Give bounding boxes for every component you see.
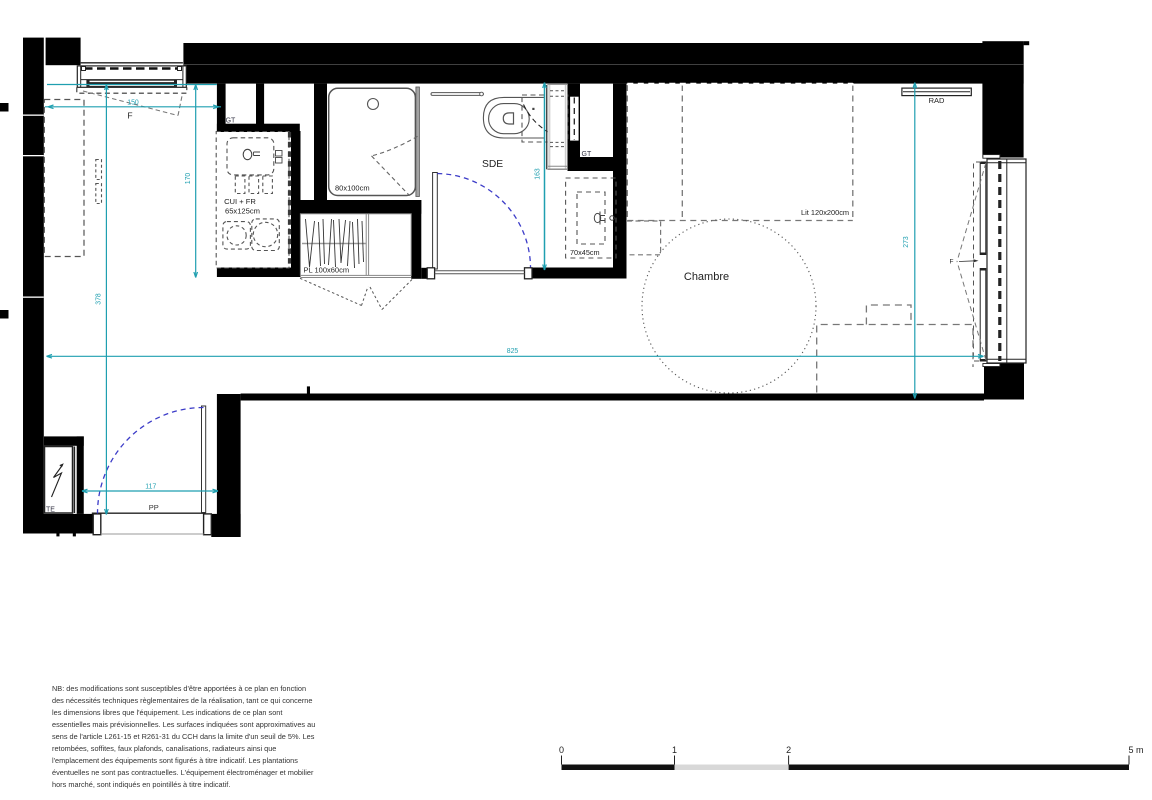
svg-text:PL 100x60cm: PL 100x60cm	[304, 266, 350, 275]
svg-text:5 m: 5 m	[1128, 745, 1143, 755]
svg-text:hors marché, sont indiqués en: hors marché, sont indiqués en pointillés…	[52, 780, 230, 789]
svg-text:les dimensions libres que l'éq: les dimensions libres que l'équipement. …	[52, 708, 282, 717]
svg-text:l'emplacement des équipements: l'emplacement des équipements sont figur…	[52, 756, 298, 765]
svg-text:TE: TE	[46, 506, 55, 513]
svg-text:170: 170	[185, 173, 192, 185]
svg-text:GT: GT	[582, 151, 592, 158]
svg-text:70x45cm: 70x45cm	[570, 248, 600, 257]
svg-text:1: 1	[672, 745, 677, 755]
svg-text:éventuelles ne sont pas contra: éventuelles ne sont pas contractuelles. …	[52, 768, 314, 777]
svg-text:150: 150	[127, 100, 139, 107]
svg-text:retombées, soffites, faux plaf: retombées, soffites, faux plafonds, cana…	[52, 744, 276, 753]
svg-text:163: 163	[535, 168, 542, 180]
svg-text:117: 117	[145, 484, 156, 491]
svg-text:sens de l'article L261-15 et R: sens de l'article L261-15 et R261-31 du …	[52, 732, 315, 741]
svg-text:RAD: RAD	[929, 96, 945, 105]
svg-text:Lit 120x200cm: Lit 120x200cm	[801, 208, 849, 217]
svg-text:825: 825	[507, 348, 519, 355]
svg-text:2: 2	[786, 745, 791, 755]
svg-text:PP: PP	[149, 503, 159, 512]
svg-text:Chambre: Chambre	[684, 271, 729, 283]
svg-text:273: 273	[903, 236, 910, 248]
svg-text:65x125cm: 65x125cm	[225, 206, 260, 215]
svg-text:80x100cm: 80x100cm	[335, 183, 370, 192]
svg-text:378: 378	[96, 293, 103, 305]
svg-text:des nécessités techniques règl: des nécessités techniques règlementaires…	[52, 696, 312, 705]
svg-text:essentielles mais prévisionnel: essentielles mais prévisionnelles. Les s…	[52, 720, 315, 729]
svg-text:NB: des modifications sont sus: NB: des modifications sont susceptibles …	[52, 684, 306, 693]
svg-text:SDE: SDE	[482, 159, 503, 170]
svg-text:CUI + FR: CUI + FR	[224, 197, 256, 206]
svg-text:F: F	[950, 258, 954, 265]
svg-text:F: F	[127, 110, 132, 120]
svg-text:GT: GT	[226, 117, 236, 124]
svg-text:0: 0	[559, 745, 564, 755]
